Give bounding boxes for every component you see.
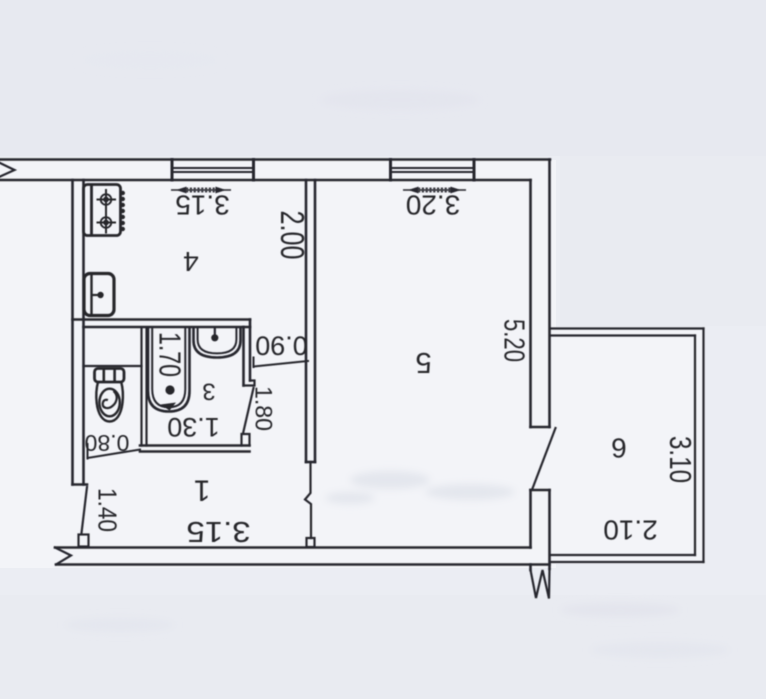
svg-text:5: 5 [415, 346, 431, 378]
svg-text:3.15: 3.15 [175, 190, 230, 221]
svg-text:2.00: 2.00 [274, 211, 311, 260]
svg-text:2.10: 2.10 [603, 515, 658, 546]
svg-text:6: 6 [611, 433, 627, 464]
svg-text:1.80: 1.80 [250, 386, 277, 431]
svg-text:0.90: 0.90 [255, 331, 308, 361]
svg-text:5.20: 5.20 [498, 319, 530, 362]
svg-text:1.40: 1.40 [93, 488, 123, 532]
svg-text:1.30: 1.30 [167, 412, 220, 442]
svg-text:3.20: 3.20 [406, 190, 461, 221]
svg-text:3.15: 3.15 [187, 515, 251, 547]
svg-text:0.80: 0.80 [85, 430, 130, 456]
svg-text:4: 4 [183, 246, 199, 277]
svg-text:1.70: 1.70 [153, 332, 188, 377]
svg-text:3: 3 [202, 378, 215, 405]
svg-text:1: 1 [194, 474, 211, 507]
svg-text:3.10: 3.10 [663, 436, 698, 483]
